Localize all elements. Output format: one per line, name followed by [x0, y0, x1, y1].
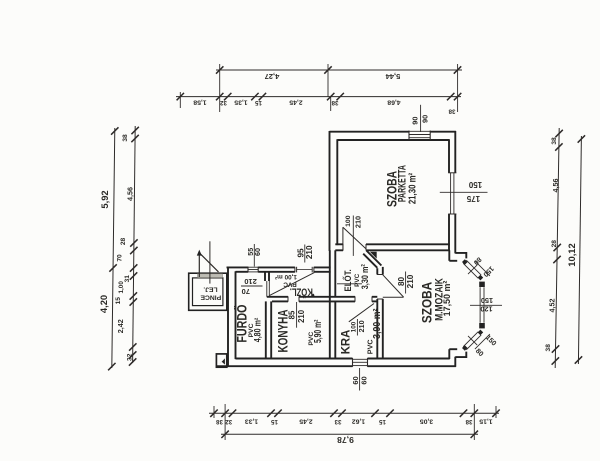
svg-text:38: 38 — [551, 137, 558, 145]
svg-text:PVC: PVC — [365, 339, 374, 354]
svg-text:KRA: KRA — [341, 330, 353, 355]
svg-text:17,50 m²: 17,50 m² — [442, 281, 452, 317]
svg-text:33: 33 — [334, 418, 341, 425]
svg-text:70: 70 — [242, 287, 250, 296]
svg-text:31: 31 — [124, 275, 131, 283]
svg-text:3,30 m²: 3,30 m² — [359, 264, 370, 289]
svg-text:1,62: 1,62 — [352, 417, 365, 424]
svg-text:210: 210 — [305, 245, 314, 259]
svg-text:38: 38 — [465, 418, 472, 425]
svg-text:4,68: 4,68 — [387, 98, 400, 105]
svg-text:38: 38 — [216, 418, 223, 425]
svg-text:4,56: 4,56 — [551, 179, 560, 193]
svg-text:5,44: 5,44 — [385, 72, 401, 81]
svg-text:175: 175 — [466, 194, 480, 203]
svg-text:1,15: 1,15 — [479, 417, 492, 424]
svg-text:28: 28 — [551, 240, 558, 248]
svg-text:KONYHA: KONYHA — [275, 309, 291, 352]
svg-text:150: 150 — [481, 296, 493, 305]
svg-text:PINCE: PINCE — [200, 293, 221, 300]
svg-text:1,33: 1,33 — [245, 417, 258, 424]
svg-text:1,35: 1,35 — [234, 98, 247, 105]
svg-text:32: 32 — [127, 353, 134, 361]
svg-text:120: 120 — [480, 305, 492, 314]
svg-text:15: 15 — [271, 418, 278, 425]
svg-text:9,78: 9,78 — [337, 435, 354, 445]
svg-text:210: 210 — [357, 320, 366, 332]
svg-text:5,92: 5,92 — [99, 190, 110, 208]
svg-text:210: 210 — [406, 274, 415, 288]
svg-text:60: 60 — [359, 376, 368, 384]
svg-text:15: 15 — [379, 418, 386, 425]
svg-text:4,80 m²: 4,80 m² — [253, 317, 263, 342]
svg-text:1,00 m²: 1,00 m² — [275, 273, 297, 280]
svg-text:210: 210 — [297, 309, 306, 323]
svg-text:10,12: 10,12 — [566, 243, 577, 266]
svg-text:4,52: 4,52 — [548, 299, 557, 313]
svg-text:1,58: 1,58 — [193, 98, 206, 105]
svg-text:LEJ.: LEJ. — [203, 286, 217, 293]
svg-text:70: 70 — [117, 254, 124, 262]
svg-text:4,56: 4,56 — [126, 187, 135, 201]
svg-text:1,00: 1,00 — [118, 281, 125, 294]
svg-text:4,20: 4,20 — [98, 295, 109, 313]
svg-text:32: 32 — [220, 99, 227, 106]
svg-text:210: 210 — [353, 216, 362, 228]
svg-text:3,90 m²: 3,90 m² — [372, 309, 383, 339]
svg-text:21,30 m²: 21,30 m² — [407, 173, 418, 204]
svg-text:80: 80 — [397, 277, 406, 287]
svg-text:100: 100 — [345, 215, 352, 227]
svg-text:PVC: PVC — [283, 280, 297, 287]
svg-text:4,27: 4,27 — [265, 72, 280, 81]
svg-text:38: 38 — [331, 99, 338, 106]
svg-text:15: 15 — [115, 297, 122, 305]
svg-text:60: 60 — [253, 248, 262, 256]
svg-text:38: 38 — [448, 107, 455, 114]
svg-text:38: 38 — [545, 344, 552, 352]
svg-text:3,05: 3,05 — [420, 417, 433, 424]
svg-text:KÖZL.: KÖZL. — [290, 286, 313, 297]
svg-text:90: 90 — [421, 115, 430, 123]
svg-text:2,45: 2,45 — [289, 98, 302, 105]
svg-text:38: 38 — [122, 134, 129, 142]
svg-text:5,90 m²: 5,90 m² — [312, 319, 324, 343]
svg-text:32: 32 — [225, 418, 232, 425]
svg-text:210: 210 — [244, 277, 257, 286]
svg-text:90: 90 — [411, 116, 420, 124]
svg-text:2,45: 2,45 — [299, 417, 312, 424]
svg-text:28: 28 — [120, 238, 127, 246]
svg-text:ELŐT.: ELŐT. — [342, 269, 354, 291]
svg-text:2,42: 2,42 — [116, 319, 125, 333]
svg-text:15: 15 — [255, 99, 262, 106]
svg-text:150: 150 — [468, 180, 482, 189]
